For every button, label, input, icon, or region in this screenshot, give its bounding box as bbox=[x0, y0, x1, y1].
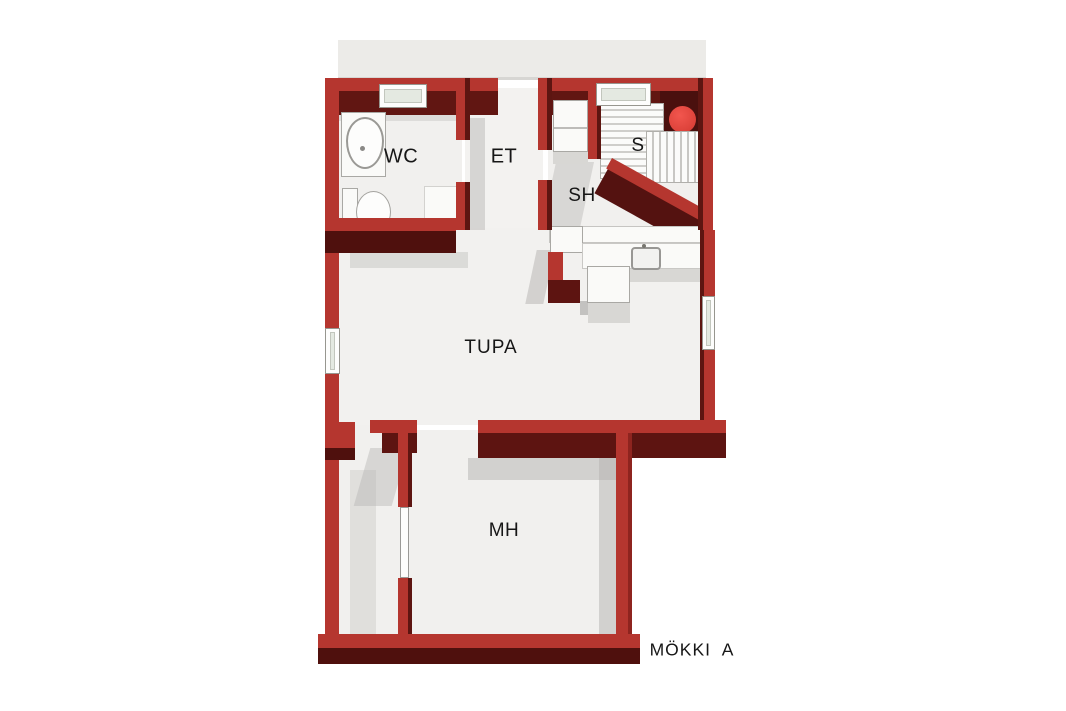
mh-top-shadow bbox=[468, 458, 620, 480]
kitchen-island bbox=[587, 266, 630, 303]
tupa-west-window bbox=[325, 328, 340, 374]
kitchen-cabinet-left bbox=[550, 226, 583, 253]
south-wall bbox=[318, 634, 640, 648]
tupa-south-wall bbox=[478, 420, 726, 433]
wc-east-wall-lower bbox=[456, 182, 470, 230]
kitchen-stub-wall bbox=[548, 252, 563, 282]
tupa-south-wall-face bbox=[478, 433, 726, 458]
tupa-east-window-glass bbox=[706, 300, 711, 346]
room-label-s: S bbox=[631, 135, 644, 157]
hall-door-leaf bbox=[400, 507, 409, 578]
tupa-top-shadow bbox=[350, 252, 468, 268]
wc-window-glass bbox=[384, 89, 422, 103]
hall-east-wall-upper bbox=[398, 433, 412, 507]
shower-locker bbox=[553, 100, 588, 152]
wc-south-wall-face bbox=[325, 231, 456, 253]
tupa-east-window bbox=[702, 296, 715, 350]
room-label-wc: WC bbox=[384, 146, 418, 169]
sh-west-wall-lower bbox=[538, 180, 552, 230]
et-wall-shadow bbox=[470, 118, 485, 230]
sh-west-wall-upper bbox=[538, 78, 552, 150]
kitchen-counter-front bbox=[624, 269, 703, 282]
west-wall-stub-face bbox=[325, 448, 355, 460]
mh-east-wall bbox=[616, 433, 632, 638]
wc-window bbox=[379, 84, 427, 108]
wc-sink-drain bbox=[360, 146, 365, 151]
wc-east-wall-upper bbox=[456, 78, 470, 140]
plan-title: MÖKKI A bbox=[650, 640, 735, 661]
shower-locker-shelf bbox=[554, 127, 587, 129]
wc-south-wall bbox=[325, 218, 456, 231]
room-label-sh: SH bbox=[568, 185, 595, 207]
east-wall-upper bbox=[698, 78, 713, 230]
room-label-tupa: TUPA bbox=[464, 337, 517, 359]
hall-stub-wall bbox=[370, 420, 417, 433]
mh-side-shadow bbox=[599, 458, 617, 636]
kitchen-stub-face bbox=[548, 280, 580, 303]
sauna-stove bbox=[669, 106, 696, 133]
kitchen-island-front bbox=[588, 303, 630, 323]
floor-plan: WC ET S SH TUPA MH MÖKKI A bbox=[0, 0, 1066, 711]
terrace-deck bbox=[338, 40, 706, 80]
south-wall-face bbox=[318, 648, 640, 664]
hall-shadow bbox=[350, 470, 376, 635]
kitchen-faucet bbox=[642, 244, 646, 248]
shower-locker-front bbox=[553, 152, 588, 164]
room-label-mh: MH bbox=[489, 520, 520, 542]
kitchen-sink bbox=[631, 247, 661, 270]
sauna-bench-lower bbox=[646, 131, 702, 183]
sauna-window-glass bbox=[601, 88, 646, 101]
tupa-west-window-glass bbox=[330, 332, 335, 370]
west-wall-stub bbox=[325, 422, 355, 448]
hall-east-wall-lower bbox=[398, 578, 412, 638]
sauna-window bbox=[596, 83, 651, 106]
room-label-et: ET bbox=[491, 146, 518, 169]
